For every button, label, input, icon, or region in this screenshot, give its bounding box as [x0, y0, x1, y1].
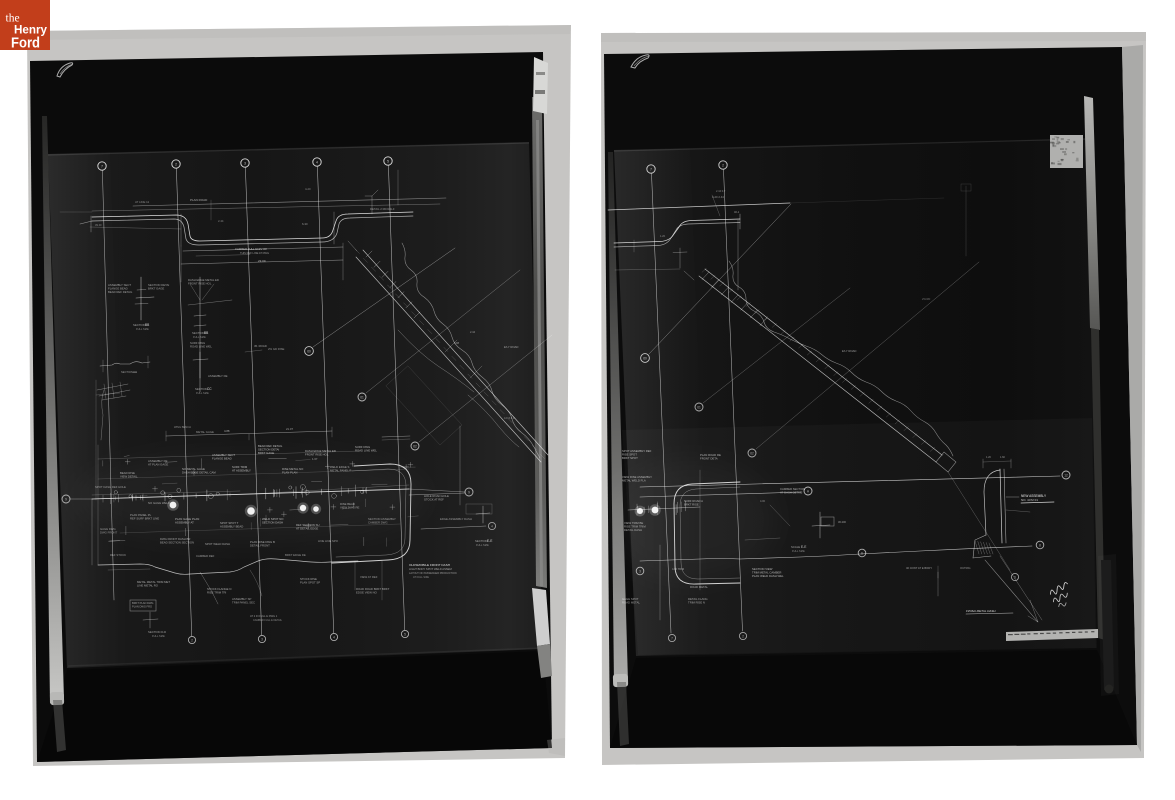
svg-text:THIS REF LINE AT DWG: THIS REF LINE AT DWG [240, 251, 269, 255]
svg-text:PLAN ROAD: PLAN ROAD [190, 198, 208, 202]
svg-text:DWG FRONT: DWG FRONT [100, 531, 118, 535]
svg-text:FULL SIZE: FULL SIZE [792, 549, 805, 553]
svg-text:62: 62 [750, 451, 754, 455]
svg-text:30.200: 30.200 [838, 520, 846, 524]
svg-text:7: 7 [101, 164, 103, 168]
svg-text:4.0 X 4.0: 4.0 X 4.0 [504, 416, 515, 420]
svg-text:BRKT RISE: BRKT RISE [684, 503, 699, 507]
svg-text:39 40: 39 40 [95, 223, 102, 227]
svg-text:12: 12 [1064, 473, 1068, 477]
svg-text:DETAIL 2 RD RALF: DETAIL 2 RD RALF [370, 207, 395, 211]
svg-text:FULL SIZE: FULL SIZE [152, 634, 165, 638]
svg-text:CAMBER DWG: CAMBER DWG [368, 521, 388, 525]
svg-text:62: 62 [413, 444, 417, 448]
svg-text:61: 61 [360, 395, 364, 399]
svg-text:SECTION D-D: SECTION D-D [148, 630, 166, 634]
svg-text:VIEW AT REF: VIEW AT REF [360, 575, 378, 579]
svg-text:Henry: Henry [14, 23, 47, 37]
svg-text:BEAD SECTION SECTION: BEAD SECTION SECTION [160, 541, 194, 545]
svg-text:LAYOUT OF PASSENGER PRODUCTION: LAYOUT OF PASSENGER PRODUCTION [409, 572, 457, 575]
svg-text:FULL SIZE: FULL SIZE [193, 335, 206, 339]
svg-text:REF SURF BRKT LINE: REF SURF BRKT LINE [130, 517, 159, 521]
svg-text:4: 4 [333, 635, 335, 639]
svg-text:45. ROAD: 45. ROAD [254, 344, 267, 348]
svg-text:2.44: 2.44 [218, 219, 224, 223]
svg-text:2: 2 [175, 162, 177, 166]
svg-text:BEAD REF DETAIL: BEAD REF DETAIL [108, 290, 133, 294]
svg-text:ASSEMBLY BEAD: ASSEMBLY BEAD [220, 525, 243, 529]
svg-text:5: 5 [404, 632, 406, 636]
svg-text:1.60: 1.60 [1000, 456, 1005, 459]
svg-text:23.09: 23.09 [258, 259, 266, 263]
svg-text:FRONT DETA: FRONT DETA [700, 457, 718, 461]
svg-text:BRKT PLAN DWG: BRKT PLAN DWG [132, 601, 153, 605]
svg-text:SCALE: SCALE [791, 545, 800, 549]
svg-text:1.67: 1.67 [312, 457, 318, 461]
svg-text:PLAN DWG FRO: PLAN DWG FRO [132, 605, 152, 609]
svg-text:AT DASH DETAIL: AT DASH DETAIL [780, 491, 803, 495]
svg-text:FRONT RISE HOL: FRONT RISE HOL [305, 453, 329, 457]
svg-text:2: 2 [191, 638, 193, 642]
svg-text:RISE TRIM TRI: RISE TRIM TRI [207, 591, 227, 595]
svg-text:3: 3 [261, 637, 263, 641]
svg-text:WING BENCH: WING BENCH [174, 425, 191, 429]
svg-text:1.20: 1.20 [660, 234, 666, 238]
svg-text:7: 7 [650, 167, 652, 171]
svg-text:BRKT EDGE DE: BRKT EDGE DE [285, 553, 306, 557]
svg-text:METAL WELD FLA: METAL WELD FLA [622, 479, 646, 483]
svg-text:2.44 0.7: 2.44 0.7 [716, 189, 726, 193]
svg-text:4.88: 4.88 [224, 429, 230, 433]
svg-text:FULL SIZE: FULL SIZE [136, 327, 149, 331]
svg-text:21.07: 21.07 [286, 427, 293, 431]
svg-text:CC: CC [207, 387, 212, 391]
svg-text:AA: AA [133, 370, 137, 374]
svg-text:3: 3 [639, 569, 641, 573]
svg-text:ROAD METAL: ROAD METAL [622, 601, 640, 605]
svg-text:40 CONT AT E BODY: 40 CONT AT E BODY [906, 566, 932, 570]
svg-text:DASH EDGE DETAIL CAM: DASH EDGE DETAIL CAM [182, 471, 216, 475]
svg-text:4.00: 4.00 [760, 499, 766, 503]
svg-text:PLAN SPOT SP: PLAN SPOT SP [300, 581, 320, 585]
svg-text:E'LY ROAD: E'LY ROAD [842, 349, 856, 353]
svg-text:BB: BB [204, 331, 208, 335]
svg-text:8: 8 [1039, 543, 1041, 547]
svg-text:2% GD RISE: 2% GD RISE [268, 347, 284, 351]
svg-text:2.44: 2.44 [470, 330, 476, 334]
svg-text:DETAIL FRONT: DETAIL FRONT [250, 544, 270, 548]
svg-text:EDGE VIEW NO: EDGE VIEW NO [356, 591, 378, 595]
svg-text:PLAN WELD DASH WEL: PLAN WELD DASH WEL [752, 574, 784, 578]
svg-text:60: 60 [643, 356, 647, 360]
svg-text:LIGHT BODY SPOT WELD ASSEM: LIGHT BODY SPOT WELD ASSEM [409, 567, 452, 571]
svg-text:40-1: 40-1 [734, 210, 740, 214]
svg-text:SECTION: SECTION [121, 370, 133, 374]
svg-text:ASSEMBLY DE: ASSEMBLY DE [208, 374, 228, 378]
svg-text:BB: BB [145, 323, 149, 327]
svg-text:AT 2 IN FULL E DWG 1: AT 2 IN FULL E DWG 1 [250, 614, 278, 618]
svg-text:SPOT WELD DASH: SPOT WELD DASH [205, 542, 230, 546]
svg-text:E-E: E-E [487, 539, 492, 543]
svg-text:SPOT DASH REF HOLE: SPOT DASH REF HOLE [95, 485, 126, 489]
svg-text:SECTION: SECTION [133, 323, 145, 327]
svg-text:FULL SIZE: FULL SIZE [476, 543, 489, 547]
svg-text:E'LY ROAD: E'LY ROAD [504, 345, 518, 349]
svg-text:4: 4 [316, 160, 318, 164]
svg-text:E-E: E-E [801, 545, 806, 549]
svg-text:CAMBER FULL E DETAIL: CAMBER FULL E DETAIL [253, 619, 283, 622]
svg-text:FLANGE BEAD: FLANGE BEAD [212, 457, 232, 461]
svg-text:ROAD LINE WEL: ROAD LINE WEL [190, 345, 212, 349]
svg-text:AT FULL SIZE: AT FULL SIZE [413, 576, 429, 579]
svg-text:DETAIL DASH: DETAIL DASH [624, 528, 642, 532]
svg-text:2: 2 [722, 163, 724, 167]
svg-text:2: 2 [742, 634, 744, 638]
svg-text:AT PLAN GAGE: AT PLAN GAGE [148, 463, 168, 467]
svg-text:61: 61 [697, 405, 701, 409]
svg-text:1.20: 1.20 [986, 456, 991, 459]
svg-text:SECTION: SECTION [475, 539, 487, 543]
svg-text:SECTION: SECTION [195, 387, 207, 391]
svg-text:NO GAGE WELD: NO GAGE WELD [148, 501, 170, 505]
svg-text:METAL PANEL R: METAL PANEL R [330, 469, 351, 473]
svg-text:SECTION DASH: SECTION DASH [262, 521, 283, 525]
svg-text:OLDSMOBILE FRONT DASH: OLDSMOBILE FRONT DASH [409, 563, 450, 567]
svg-text:EDGE ASSEMBLY DASH: EDGE ASSEMBLY DASH [440, 517, 472, 521]
svg-text:TRIM PANEL SEC: TRIM PANEL SEC [232, 601, 255, 605]
svg-text:ROAD METAL: ROAD METAL [690, 585, 708, 589]
svg-text:6: 6 [861, 551, 863, 555]
svg-text:6-30: 6-30 [302, 222, 308, 226]
svg-text:FINISH METAL DASH: FINISH METAL DASH [966, 609, 996, 613]
svg-text:CAMBER REF: CAMBER REF [196, 554, 215, 558]
svg-text:4-20 2.44: 4-20 2.44 [712, 195, 724, 199]
svg-text:9: 9 [468, 490, 470, 494]
svg-text:4-20: 4-20 [305, 187, 311, 191]
svg-text:AT LINE 12: AT LINE 12 [135, 200, 150, 204]
svg-text:FRONT RISE HOL: FRONT RISE HOL [188, 282, 212, 286]
svg-text:AT ASSEMBLY: AT ASSEMBLY [232, 469, 251, 473]
svg-text:5: 5 [387, 159, 389, 163]
svg-text:BRKT GAGE: BRKT GAGE [148, 287, 164, 291]
svg-text:REF STOCK: REF STOCK [110, 553, 126, 557]
svg-text:TRIM RISE N: TRIM RISE N [688, 601, 705, 605]
svg-text:VIEW DWG RE: VIEW DWG RE [340, 506, 360, 510]
svg-text:STOCK AT REF: STOCK AT REF [424, 498, 444, 502]
svg-text:BRKT SPOT: BRKT SPOT [622, 456, 638, 460]
svg-text:BRKT GAGE: BRKT GAGE [258, 451, 274, 455]
svg-text:METAL GAGE: METAL GAGE [196, 430, 214, 434]
svg-text:7: 7 [671, 636, 673, 640]
svg-text:LINE METAL RO: LINE METAL RO [137, 584, 159, 588]
svg-text:5: 5 [1014, 575, 1016, 579]
svg-text:SECTION: SECTION [192, 331, 204, 335]
svg-text:3: 3 [244, 161, 246, 165]
svg-text:ROAD LINE WEL: ROAD LINE WEL [355, 449, 377, 453]
svg-text:60: 60 [307, 349, 311, 353]
svg-text:4.88: 4.88 [454, 341, 460, 345]
svg-text:Ford: Ford [11, 36, 40, 52]
svg-text:ASSEMBLY AT: ASSEMBLY AT [175, 521, 194, 525]
svg-text:4.00 TRIM: 4.00 TRIM [672, 567, 684, 571]
svg-text:NO. 4472 01: NO. 4472 01 [1021, 498, 1038, 502]
svg-text:CAMBER FULL ELEV OF: CAMBER FULL ELEV OF [235, 247, 267, 251]
svg-text:OUTRIG: OUTRIG [960, 566, 970, 570]
svg-text:LINE LINE SPO: LINE LINE SPO [318, 539, 339, 543]
svg-text:2% RD: 2% RD [922, 297, 930, 301]
svg-text:FULL SIZE: FULL SIZE [196, 391, 209, 395]
svg-text:4: 4 [491, 524, 493, 528]
svg-text:9: 9 [65, 497, 67, 501]
